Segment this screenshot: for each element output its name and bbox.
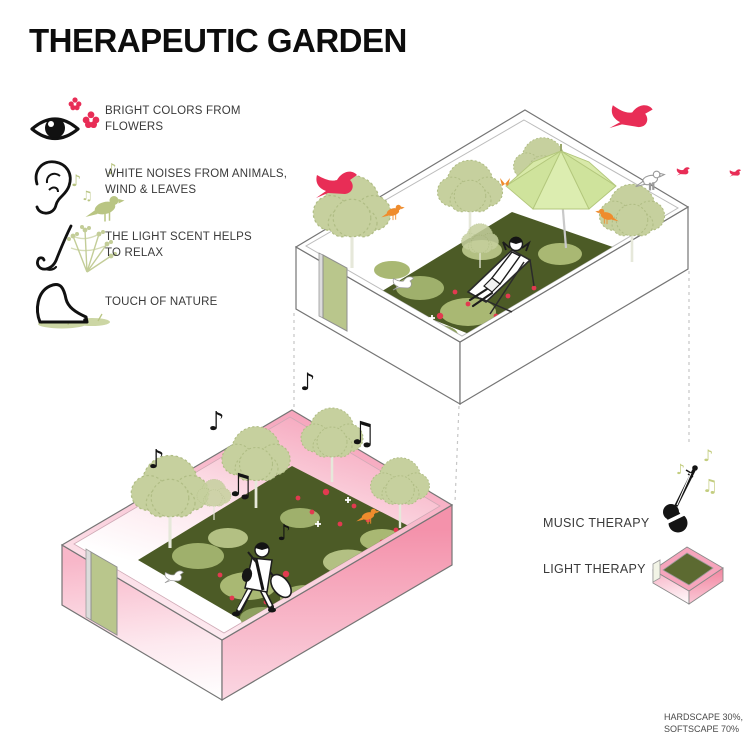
violin-icon: ♪ ♪ ♫ (659, 446, 718, 533)
page-title: THERAPEUTIC GARDEN (29, 22, 407, 60)
light-therapy-label: LIGHT THERAPY (543, 562, 646, 576)
music-therapy-label: MUSIC THERAPY (543, 516, 649, 530)
sense-label-smell: THE LIGHT SCENT HELPS TO RELAX (105, 230, 310, 261)
eye-icon (28, 96, 108, 152)
svg-text:♫: ♫ (226, 466, 255, 504)
svg-text:♪: ♪ (148, 445, 165, 475)
sense-label-touch: TOUCH OF NATURE (105, 295, 310, 311)
relaxation-garden-box (296, 102, 741, 404)
infographic-therapeutic-garden: ♪ ♪ ♪ ♫ ♫ ♪ ♪ ♪ ♫ (0, 0, 750, 750)
svg-text:♫: ♫ (702, 476, 718, 497)
svg-text:♪: ♪ (703, 446, 713, 465)
svg-text:♪: ♪ (277, 521, 291, 546)
svg-text:♫: ♫ (348, 414, 377, 452)
light-box-icon (653, 547, 723, 604)
svg-text:♪: ♪ (71, 171, 81, 190)
svg-text:♪: ♪ (300, 368, 315, 396)
hardscape-softscape-note: HARDSCAPE 30%, SOFTSCAPE 70% (664, 711, 743, 735)
svg-text:♪: ♪ (676, 462, 685, 478)
music-garden-box: ♪ ♪ ♪ ♫ ♫ ♪ (62, 368, 452, 700)
music-note-icon: ♪ ♪ ♫ (676, 446, 718, 497)
svg-text:♫: ♫ (81, 189, 93, 204)
svg-text:♪: ♪ (208, 407, 225, 437)
sense-label-hearing: WHITE NOISES FROM ANIMALS, WIND & LEAVES (105, 167, 310, 198)
sense-label-sight: BRIGHT COLORS FROM FLOWERS (105, 104, 310, 135)
